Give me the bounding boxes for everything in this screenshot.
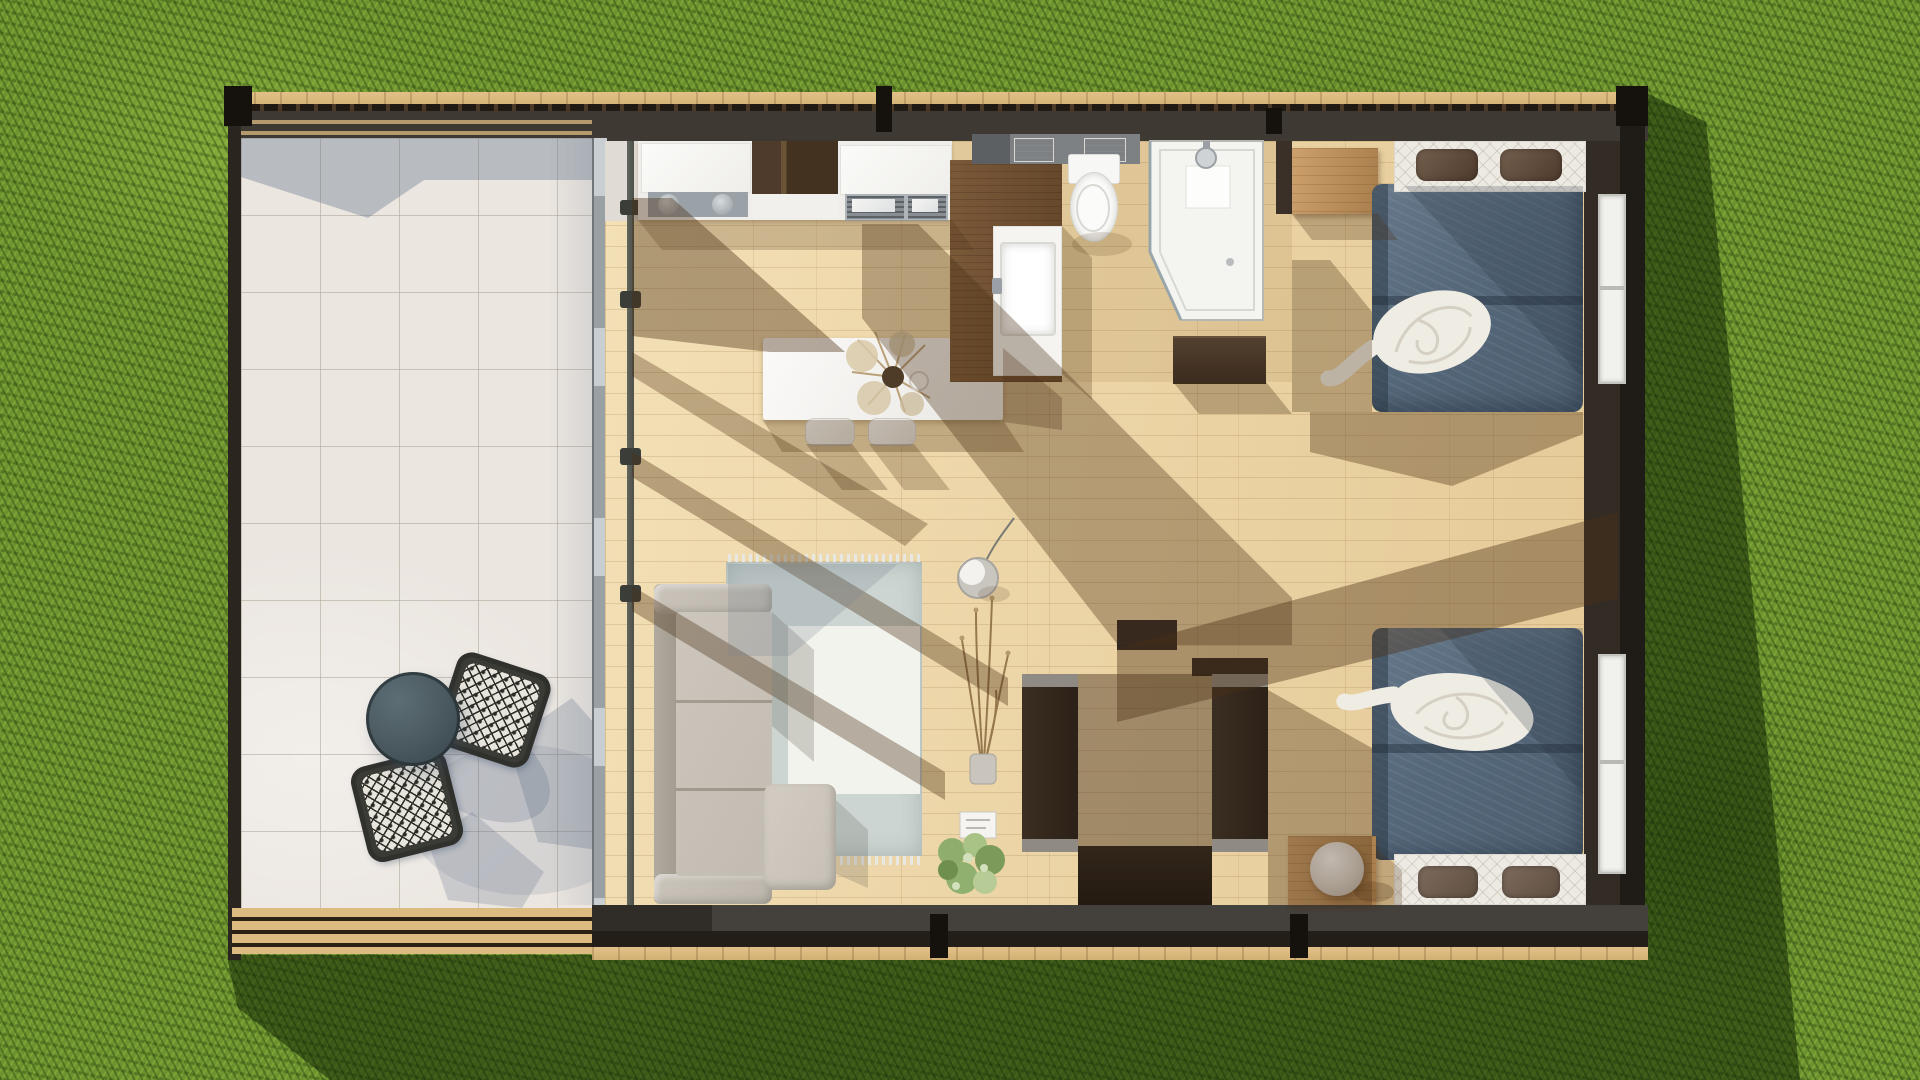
lamp-shadow xyxy=(1354,882,1394,902)
toilet-shadow xyxy=(1072,232,1132,256)
bed-2-duvet-shade xyxy=(1440,628,1583,795)
bedroom-2-floor-shadow xyxy=(1268,690,1372,905)
interior-shadow-overlay xyxy=(0,0,1920,1080)
cabinet-shadow xyxy=(1292,214,1398,240)
dresser-shadow xyxy=(1173,382,1292,414)
bed-1-duvet-shade xyxy=(1405,186,1583,378)
bed-1-floor-shadow xyxy=(1310,412,1583,486)
pendant-shadow xyxy=(978,586,1010,602)
chaise-shadow xyxy=(836,800,868,888)
floorplan-render xyxy=(0,0,1920,1080)
bedroom-1-floor-shadow xyxy=(1292,260,1372,412)
